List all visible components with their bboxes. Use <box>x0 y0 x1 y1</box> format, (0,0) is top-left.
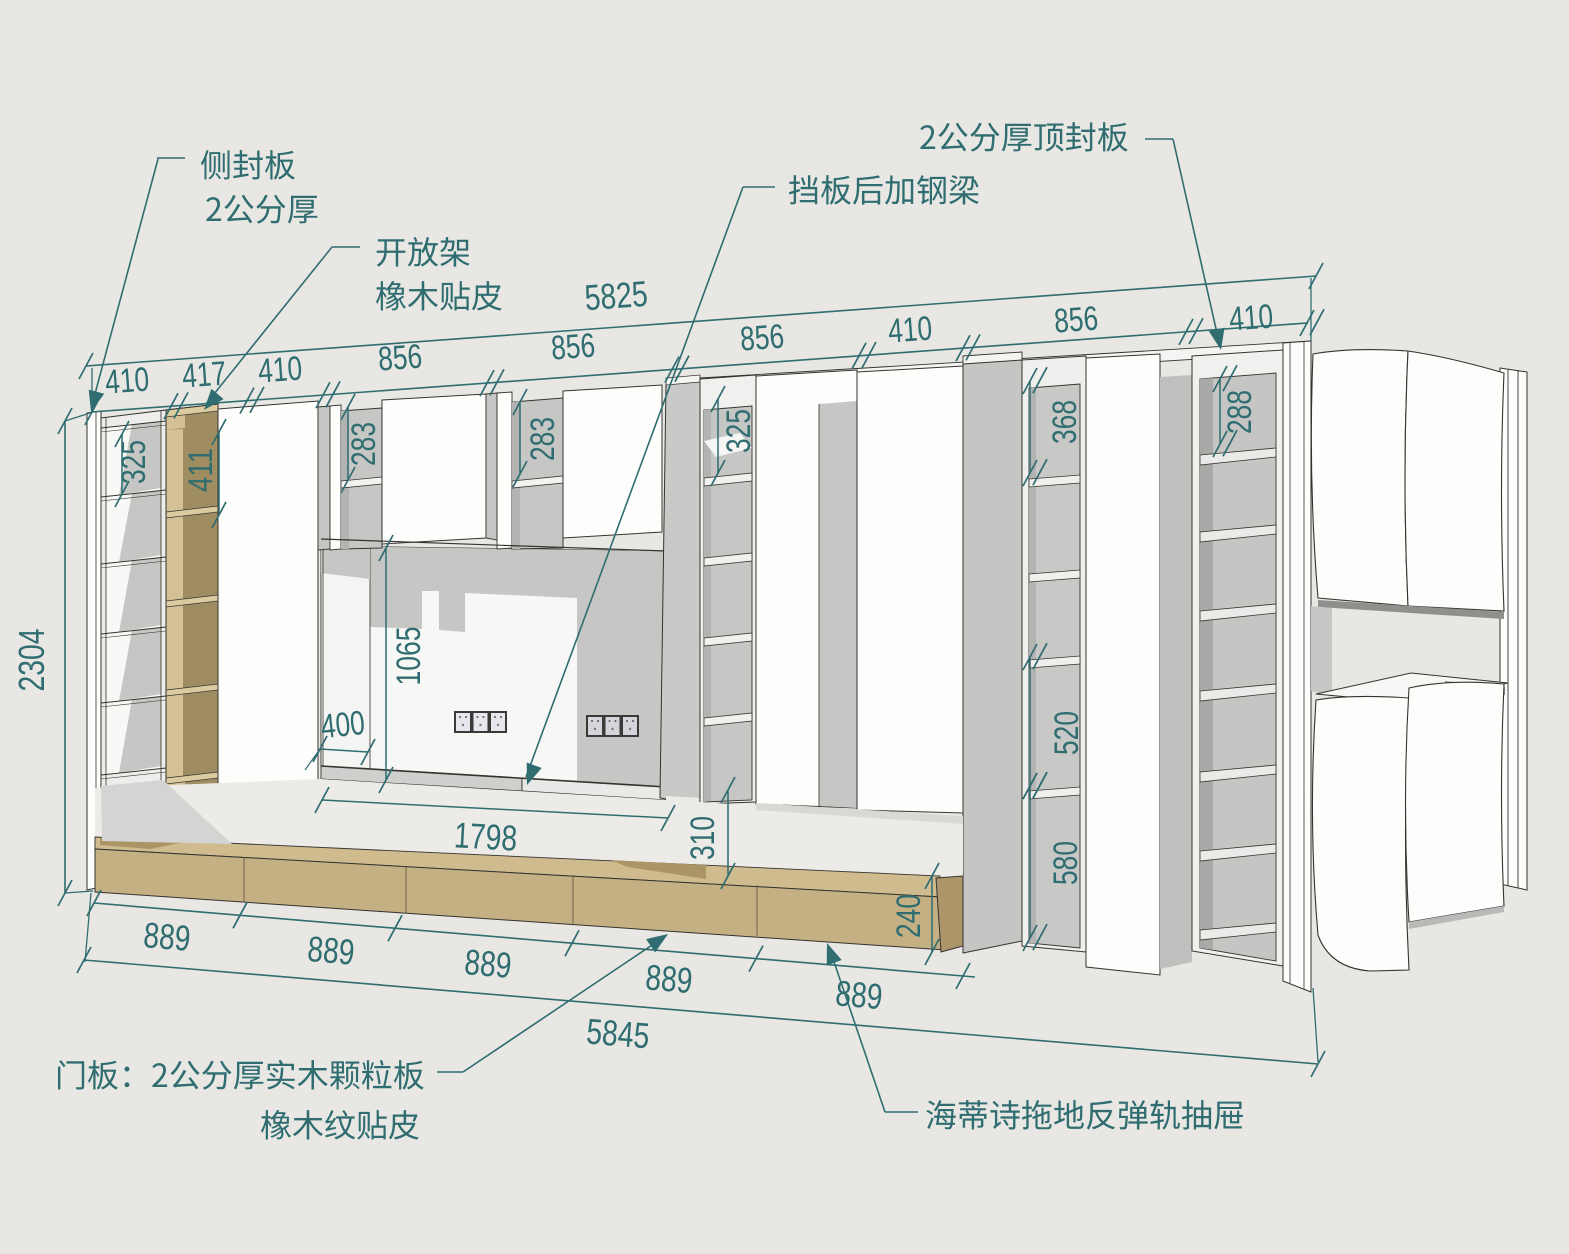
svg-text:325: 325 <box>720 409 758 453</box>
svg-text:5845: 5845 <box>585 1011 651 1057</box>
svg-text:410: 410 <box>104 360 151 401</box>
svg-text:368: 368 <box>1046 400 1084 444</box>
svg-text:410: 410 <box>1228 297 1275 338</box>
svg-text:1798: 1798 <box>453 814 518 858</box>
svg-text:325: 325 <box>115 440 153 484</box>
svg-text:856: 856 <box>377 337 424 378</box>
svg-text:889: 889 <box>644 956 694 1001</box>
svg-text:417: 417 <box>181 354 228 395</box>
svg-text:889: 889 <box>306 928 356 973</box>
svg-text:288: 288 <box>1221 390 1259 434</box>
svg-text:889: 889 <box>834 972 884 1017</box>
svg-text:889: 889 <box>142 914 192 959</box>
svg-text:400: 400 <box>319 704 367 746</box>
svg-text:856: 856 <box>1053 299 1100 340</box>
svg-text:410: 410 <box>887 309 934 350</box>
svg-text:2304: 2304 <box>11 629 52 692</box>
svg-text:856: 856 <box>739 317 786 358</box>
svg-text:411: 411 <box>182 448 220 492</box>
svg-text:889: 889 <box>463 941 513 986</box>
svg-text:310: 310 <box>684 816 722 860</box>
svg-text:283: 283 <box>524 417 562 461</box>
svg-text:856: 856 <box>550 326 597 367</box>
svg-text:5825: 5825 <box>583 273 649 319</box>
svg-text:283: 283 <box>345 422 383 466</box>
svg-text:1065: 1065 <box>390 627 428 686</box>
svg-text:240: 240 <box>890 894 928 938</box>
svg-text:410: 410 <box>257 349 304 390</box>
svg-text:580: 580 <box>1047 841 1085 885</box>
svg-text:520: 520 <box>1048 711 1086 755</box>
